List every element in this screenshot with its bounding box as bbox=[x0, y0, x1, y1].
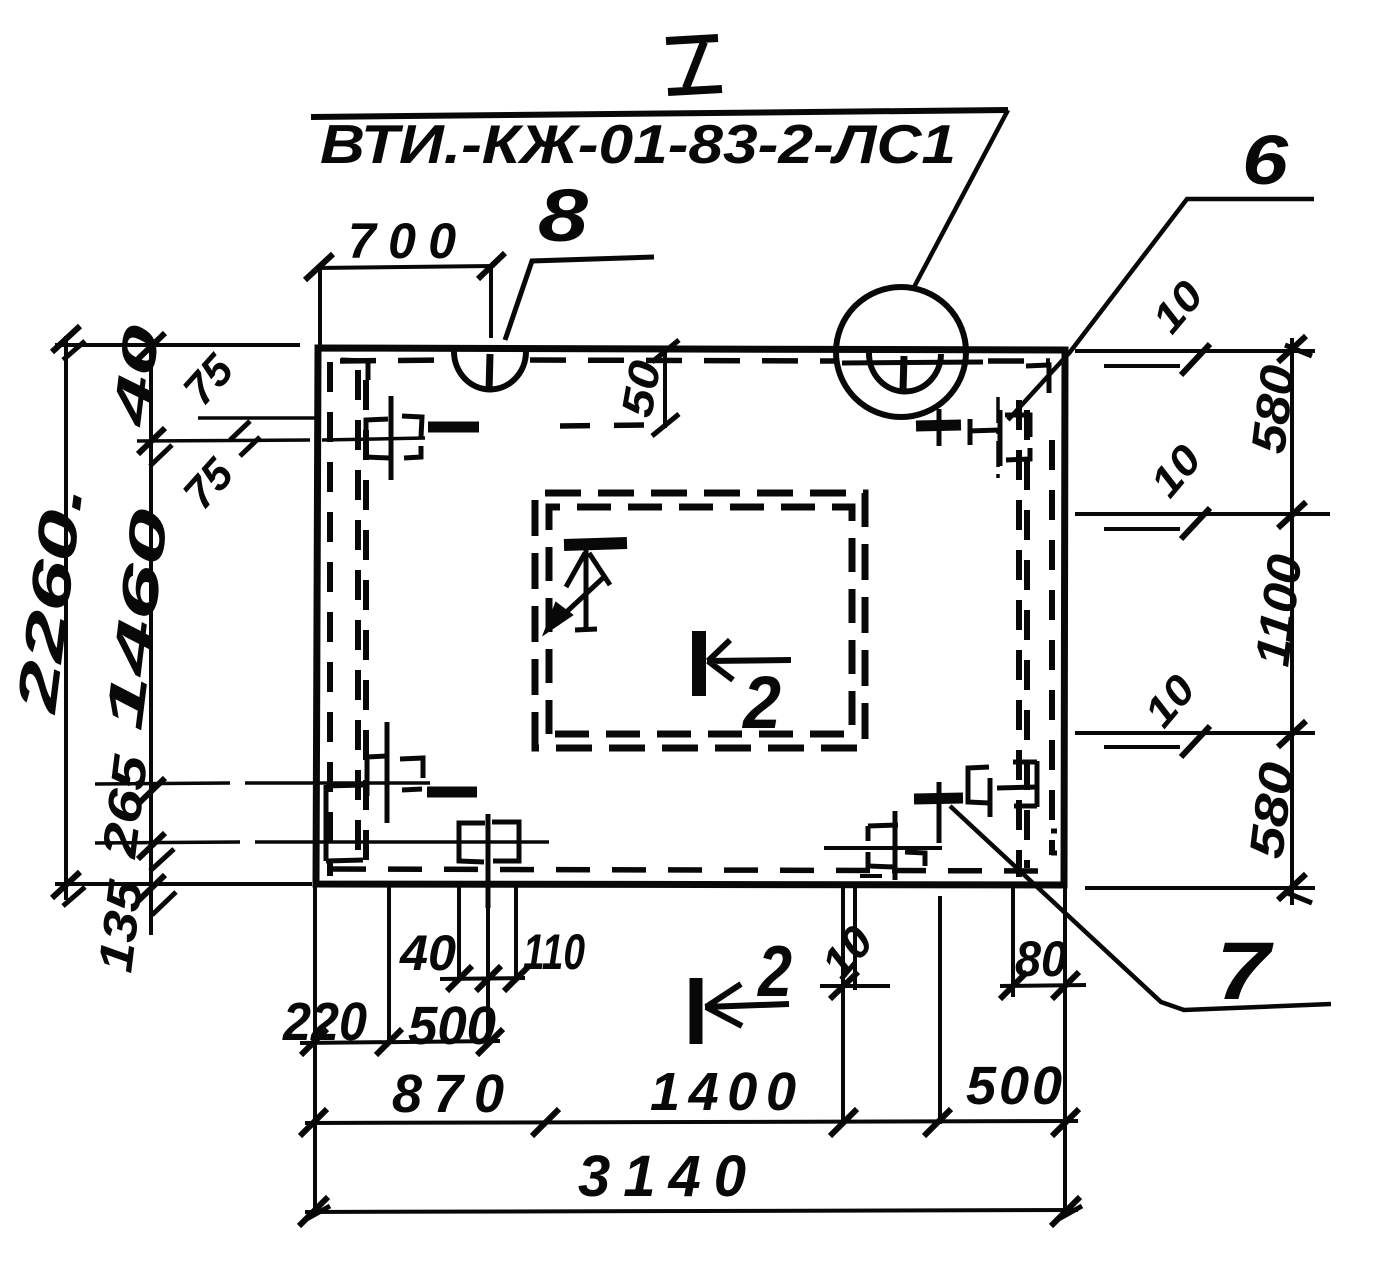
svg-text:7: 7 bbox=[1216, 926, 1274, 1017]
svg-text:580: 580 bbox=[1242, 362, 1305, 456]
svg-text:75: 75 bbox=[174, 345, 244, 415]
svg-text:3140: 3140 bbox=[578, 1144, 746, 1209]
svg-text:2260.: 2260. bbox=[4, 481, 95, 717]
svg-text:6: 6 bbox=[1242, 121, 1289, 199]
svg-text:110: 110 bbox=[523, 924, 585, 980]
svg-text:500: 500 bbox=[408, 996, 496, 1056]
svg-text:50: 50 bbox=[613, 356, 671, 420]
svg-text:40: 40 bbox=[102, 322, 170, 430]
svg-text:10: 10 bbox=[1141, 436, 1210, 506]
svg-text:700: 700 bbox=[348, 213, 456, 269]
svg-text:ВТИ.-КЖ-01-83-2-ЛС1: ВТИ.-КЖ-01-83-2-ЛС1 bbox=[320, 113, 956, 175]
svg-text:10: 10 bbox=[1143, 272, 1212, 342]
svg-text:10: 10 bbox=[1135, 666, 1204, 736]
svg-text:40: 40 bbox=[399, 925, 456, 981]
svg-text:1400: 1400 bbox=[650, 1062, 796, 1122]
svg-text:2: 2 bbox=[741, 661, 781, 744]
svg-text:870: 870 bbox=[392, 1064, 504, 1124]
svg-text:135: 135 bbox=[89, 876, 153, 975]
svg-text:1100: 1100 bbox=[1246, 551, 1312, 669]
svg-text:580: 580 bbox=[1240, 759, 1304, 861]
svg-text:8: 8 bbox=[538, 174, 589, 257]
svg-text:75: 75 bbox=[174, 449, 244, 519]
svg-text:10: 10 bbox=[812, 917, 883, 989]
svg-text:1460: 1460 bbox=[95, 506, 180, 734]
svg-text:220: 220 bbox=[282, 992, 367, 1052]
svg-text:80: 80 bbox=[1015, 931, 1067, 987]
svg-text:500: 500 bbox=[966, 1056, 1062, 1116]
svg-text:2: 2 bbox=[756, 932, 792, 1012]
